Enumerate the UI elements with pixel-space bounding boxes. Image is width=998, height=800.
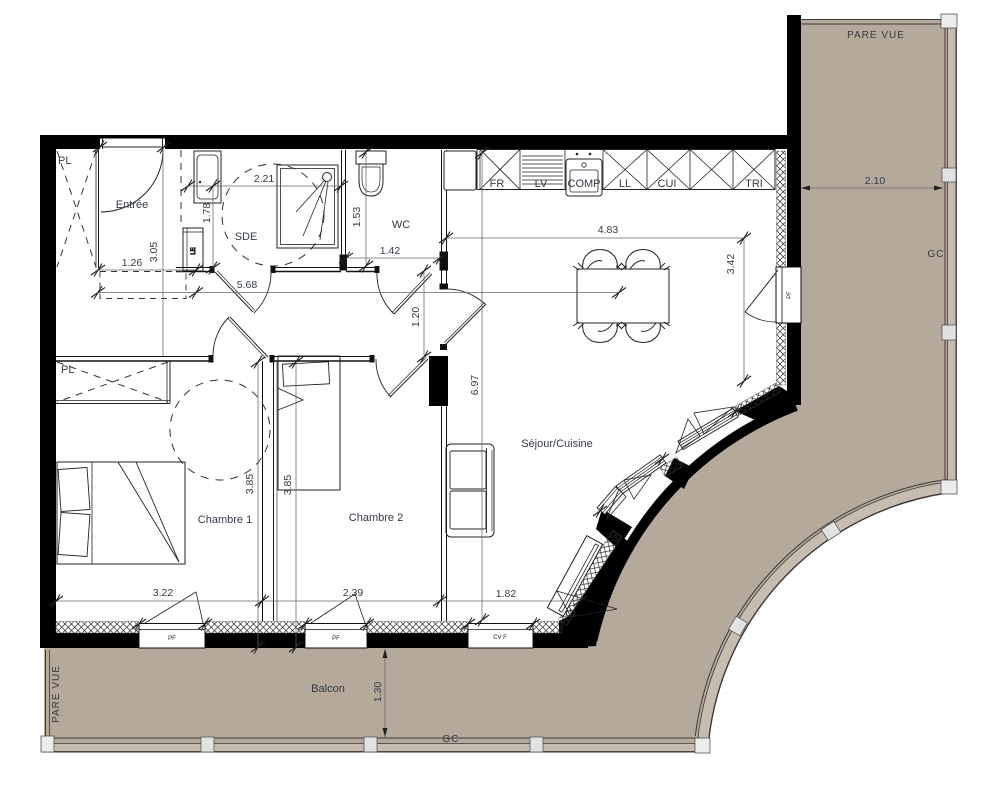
svg-text:3.85: 3.85 <box>282 475 294 496</box>
svg-text:PARE VUE: PARE VUE <box>51 665 62 723</box>
svg-text:4.83: 4.83 <box>598 224 619 236</box>
svg-text:LL: LL <box>619 178 631 190</box>
svg-text:Chambre 2: Chambre 2 <box>349 512 403 524</box>
svg-text:3.42: 3.42 <box>725 254 737 275</box>
svg-text:TRI: TRI <box>745 178 763 190</box>
svg-text:Entrée: Entrée <box>116 199 148 211</box>
svg-text:2.39: 2.39 <box>343 587 364 599</box>
svg-text:1.26: 1.26 <box>122 257 143 269</box>
svg-text:2.10: 2.10 <box>865 175 886 187</box>
svg-text:5.68: 5.68 <box>237 279 258 291</box>
svg-text:Balcon: Balcon <box>311 683 345 695</box>
svg-text:3.22: 3.22 <box>153 587 174 599</box>
svg-text:2.21: 2.21 <box>254 173 275 185</box>
svg-text:1.53: 1.53 <box>351 207 363 228</box>
svg-text:PL: PL <box>61 364 74 376</box>
svg-text:PF: PF <box>787 291 793 299</box>
svg-text:1.20: 1.20 <box>410 307 422 328</box>
svg-text:LE: LE <box>191 247 197 254</box>
svg-text:SDE: SDE <box>235 231 258 243</box>
svg-text:PL: PL <box>58 155 71 167</box>
svg-text:CV F: CV F <box>493 635 507 641</box>
svg-text:PF: PF <box>168 636 176 642</box>
svg-text:WC: WC <box>392 219 410 231</box>
svg-text:3.05: 3.05 <box>148 242 160 263</box>
svg-text:6.97: 6.97 <box>469 375 481 396</box>
svg-text:Chambre 1: Chambre 1 <box>198 514 252 526</box>
svg-text:PF: PF <box>332 636 340 642</box>
svg-text:PARE VUE: PARE VUE <box>847 30 905 41</box>
svg-text:COMP: COMP <box>568 178 601 190</box>
svg-text:FR: FR <box>490 178 505 190</box>
svg-text:3.85: 3.85 <box>244 474 256 495</box>
svg-text:CUI: CUI <box>658 178 677 190</box>
svg-text:GC: GC <box>928 249 945 260</box>
svg-text:GC: GC <box>443 734 460 745</box>
svg-text:1.78: 1.78 <box>201 203 213 224</box>
svg-text:1.30: 1.30 <box>372 682 384 703</box>
svg-text:1.42: 1.42 <box>380 245 401 257</box>
svg-text:1.82: 1.82 <box>496 588 517 600</box>
svg-text:LV: LV <box>535 178 548 190</box>
svg-text:Séjour/Cuisine: Séjour/Cuisine <box>521 438 593 450</box>
